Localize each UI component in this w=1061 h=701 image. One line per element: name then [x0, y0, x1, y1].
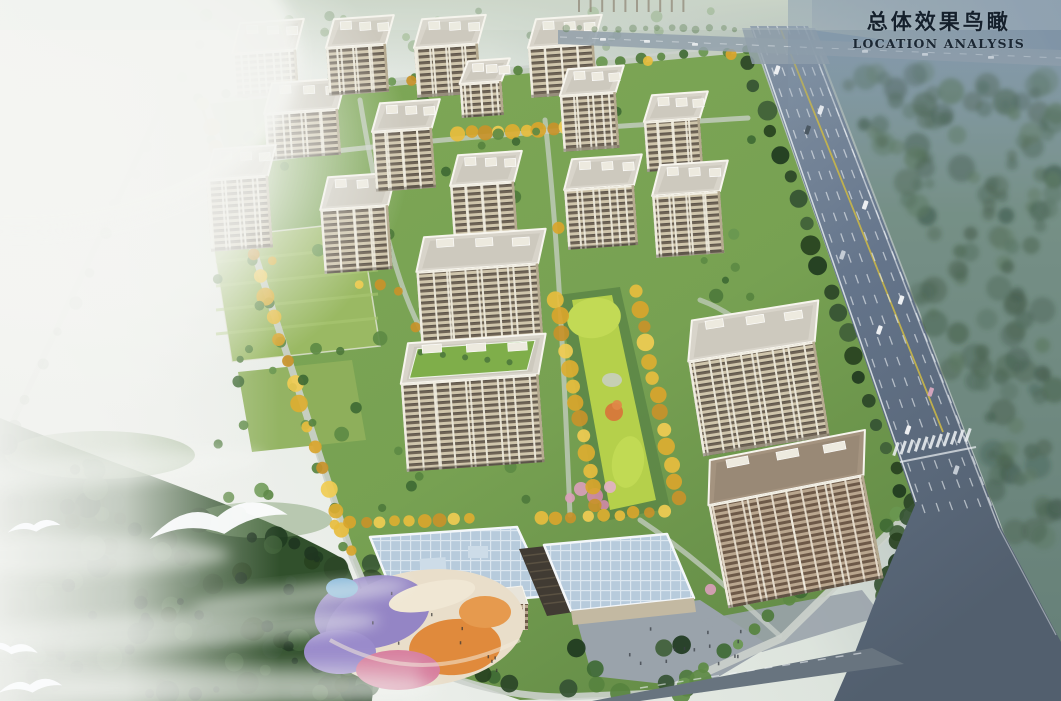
drawing-title: 总体效果鸟瞰 LOCATION ANALYSIS	[853, 10, 1026, 51]
residential-tower	[682, 300, 840, 456]
aerial-birdseye-rendering: 总体效果鸟瞰 LOCATION ANALYSIS	[0, 0, 1061, 701]
rendering-canvas	[0, 0, 1061, 701]
title-english: LOCATION ANALYSIS	[853, 36, 1026, 51]
residential-tower	[700, 430, 893, 608]
title-chinese: 总体效果鸟瞰	[853, 10, 1026, 33]
residential-tower	[398, 334, 555, 472]
residential-tower	[414, 229, 553, 346]
